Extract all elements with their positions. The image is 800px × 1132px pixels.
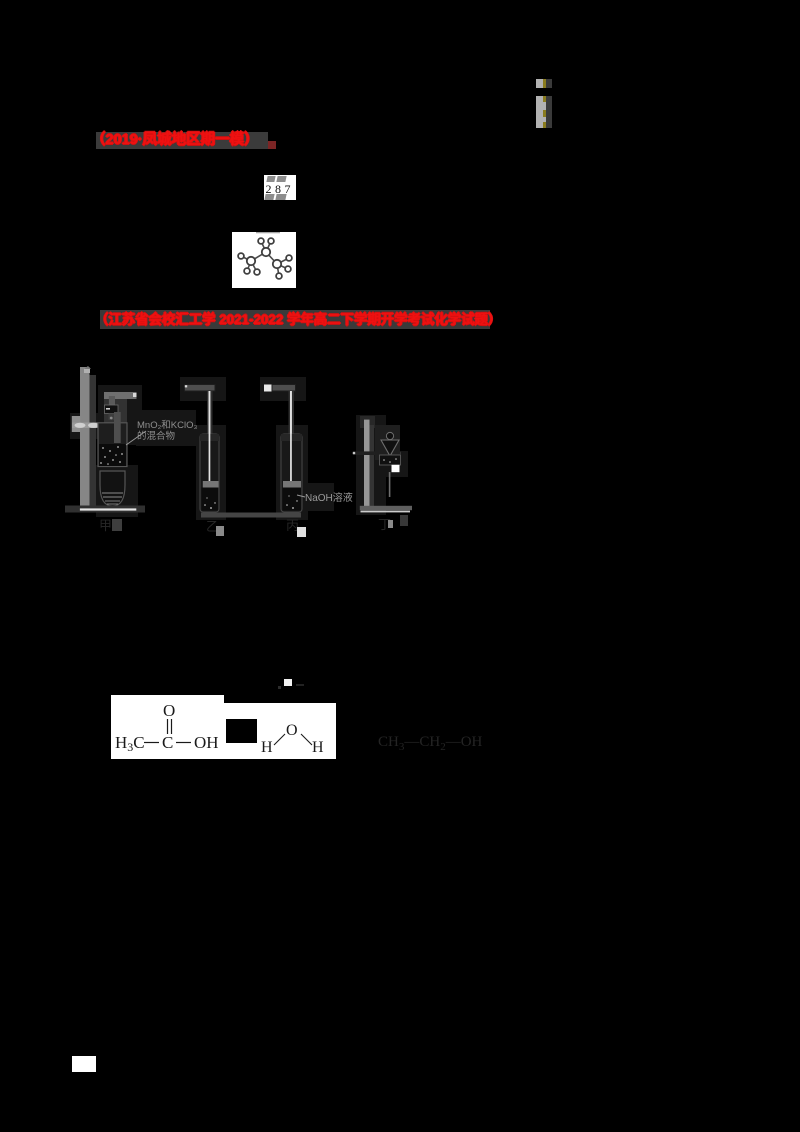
svg-text:的混合物: 的混合物 — [137, 430, 176, 442]
svg-text:O: O — [163, 701, 175, 720]
svg-text:H: H — [312, 739, 324, 756]
svg-text:OH: OH — [194, 733, 219, 752]
svg-text:甲: 甲 — [99, 518, 112, 533]
svg-text:O: O — [286, 722, 298, 739]
svg-text:MnO₂和KClO₃: MnO₂和KClO₃ — [137, 420, 197, 431]
svg-text:H3C: H3C — [115, 733, 145, 754]
svg-text:NaOH溶液: NaOH溶液 — [305, 491, 353, 504]
svg-text:H: H — [261, 739, 273, 756]
svg-text:C: C — [162, 733, 173, 752]
